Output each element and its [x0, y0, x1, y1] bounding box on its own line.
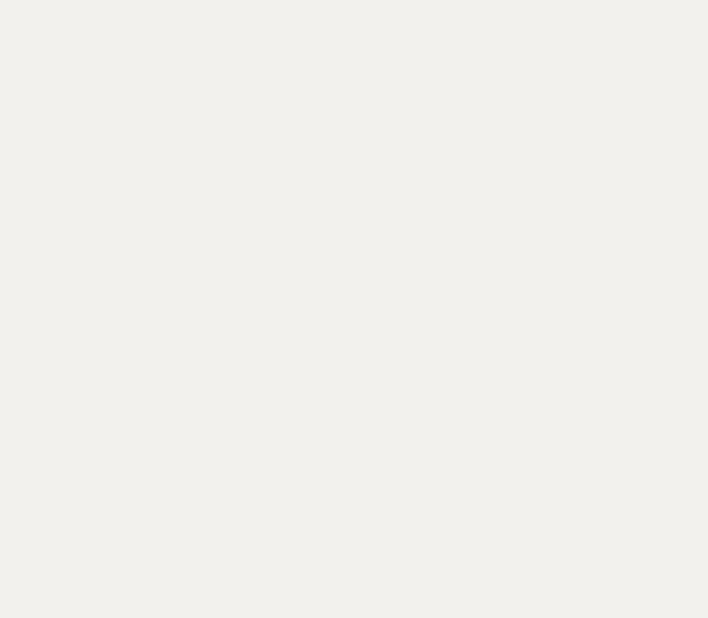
map-canvas[interactable]	[0, 0, 708, 618]
